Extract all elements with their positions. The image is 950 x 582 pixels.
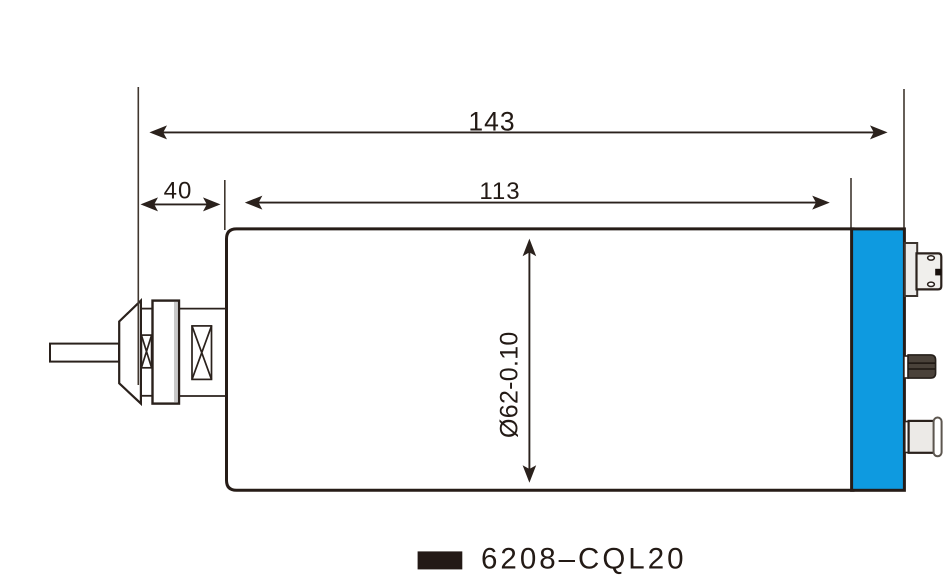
svg-text:40: 40 [164, 178, 193, 205]
svg-text:6208–CQL20: 6208–CQL20 [481, 543, 687, 576]
svg-text:Ø62-0.10: Ø62-0.10 [496, 331, 524, 438]
svg-text:113: 113 [479, 178, 520, 205]
svg-text:143: 143 [468, 106, 515, 136]
